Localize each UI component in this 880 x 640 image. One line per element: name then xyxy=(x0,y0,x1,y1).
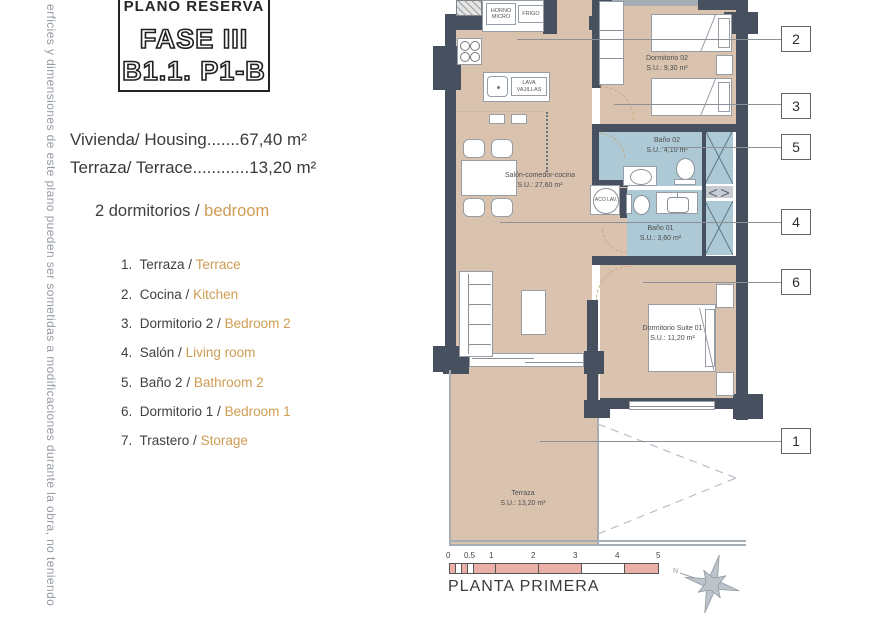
bedrooms-line: 2 dormitorios / bedroom xyxy=(95,202,269,221)
toilet-tank-icon xyxy=(674,179,696,185)
legend-en: Kitchen xyxy=(193,287,238,302)
wardrobe-suite xyxy=(716,284,734,308)
coffee-table xyxy=(521,290,546,335)
wardrobe-suite xyxy=(716,372,734,396)
legend-item-cocina: 2. Cocina / Kitchen xyxy=(121,287,238,302)
burner-icon xyxy=(470,41,480,51)
callout-number: 4 xyxy=(792,214,800,230)
kitchen-sink xyxy=(487,76,508,97)
scale-tick-0: 0 xyxy=(446,551,450,560)
legend-num: 4. xyxy=(121,345,132,360)
legend-item-dormitorio2: 3. Dormitorio 2 / Bedroom 2 xyxy=(121,316,291,331)
legend-es: Terraza / xyxy=(140,257,193,272)
callout-number: 6 xyxy=(792,274,800,290)
shaft-hatched xyxy=(456,0,482,16)
dining-chair xyxy=(463,139,485,158)
wall-segment xyxy=(592,132,599,182)
legend-item-dormitorio1: 6. Dormitorio 1 / Bedroom 1 xyxy=(121,404,291,419)
scale-tick-1: 1 xyxy=(489,551,493,560)
scale-tick-05: 0.5 xyxy=(464,551,475,560)
wall-pilaster xyxy=(733,394,763,419)
bed-single xyxy=(651,78,732,116)
legend-en: Terrace xyxy=(196,257,241,272)
sofa-cushion-line xyxy=(468,344,491,345)
scale-tick-4: 4 xyxy=(615,551,619,560)
wall-bedroom2-bath2 xyxy=(592,124,748,132)
wardrobe-bedroom2 xyxy=(599,1,624,85)
leader-line-kitchen xyxy=(517,39,781,40)
room-area: S.U.: 9,30 m² xyxy=(622,64,712,74)
terrace-area-line: Terraza/ Terrace............13,20 m² xyxy=(70,158,316,178)
legend-es: Cocina / xyxy=(140,287,190,302)
callout-3-bedroom2: 3 xyxy=(781,93,811,119)
wall-pilaster xyxy=(584,400,610,418)
scale-tick-3: 3 xyxy=(573,551,577,560)
legend-en: Living room xyxy=(186,345,256,360)
sink-drain-icon xyxy=(497,86,500,89)
window-top-bedroom2 xyxy=(612,0,698,6)
scale-segment xyxy=(474,564,496,573)
callout-4-living: 4 xyxy=(781,209,811,235)
room-label-suite: Dormitorio Suite 01 S.U.: 11,20 m² xyxy=(620,324,725,344)
dining-chair xyxy=(491,139,513,158)
legend-num: 3. xyxy=(121,316,132,331)
vanity-bath2 xyxy=(623,166,657,186)
room-label-living: Salón-comedor-cocina S.U.: 27,60 m² xyxy=(494,171,586,191)
floor-plan-sheet: erficies y dimensiones de este plano pue… xyxy=(0,0,880,640)
toilet-tank-icon xyxy=(626,194,632,214)
callout-number: 5 xyxy=(792,139,800,155)
washer-closet: ACO LAV. xyxy=(590,185,620,215)
kitchen-zone-line xyxy=(456,111,546,112)
legend-en: Bedroom 1 xyxy=(225,404,291,419)
bed-single xyxy=(651,14,732,52)
legend-item-salon: 4. Salón / Living room xyxy=(121,345,255,360)
room-name: Baño 01 xyxy=(618,224,703,234)
unit-label: B1.1. P1-B xyxy=(118,56,270,87)
wall-segment xyxy=(698,0,738,10)
legend-num: 5. xyxy=(121,375,132,390)
stove-hob xyxy=(457,38,482,65)
oven-microwave-unit: HORNO MICRO xyxy=(486,3,516,25)
wall-segment xyxy=(543,0,557,34)
closet-lower xyxy=(705,201,733,255)
leader-line-living xyxy=(500,222,781,223)
legend-es: Trastero / xyxy=(140,433,197,448)
room-area: S.U.: 3,60 m² xyxy=(618,234,703,244)
leader-line-terrace xyxy=(540,441,781,442)
callout-6-suite: 6 xyxy=(781,269,811,295)
legend-item-bano2: 5. Baño 2 / Bathroom 2 xyxy=(121,375,264,390)
fridge-unit: FRIGO xyxy=(518,5,544,23)
sofa-cushion-line xyxy=(468,304,491,305)
toilet-bath1 xyxy=(626,193,650,215)
toilet-bowl-icon xyxy=(633,195,650,215)
legend-num: 1. xyxy=(121,257,132,272)
room-area: S.U.: 13,20 m² xyxy=(483,499,563,509)
pillow xyxy=(718,82,730,112)
nightstand xyxy=(716,55,733,75)
dining-chair xyxy=(491,198,513,217)
sofa-back-line xyxy=(468,274,469,354)
scale-tick-2: 2 xyxy=(531,551,535,560)
legend-item-trastero: 7. Trastero / Storage xyxy=(121,433,248,448)
kitchen-zone-dotted-line xyxy=(546,112,548,172)
legend-es: Baño 2 / xyxy=(140,375,190,390)
scale-segment xyxy=(496,564,539,573)
dining-chair xyxy=(463,198,485,217)
stool xyxy=(511,114,527,124)
room-name: Baño 02 xyxy=(622,136,712,146)
parapet-left xyxy=(449,370,451,544)
scale-segment xyxy=(625,564,658,573)
plan-title: PLANTA PRIMERA xyxy=(448,578,600,596)
legend-en: Bathroom 2 xyxy=(194,375,264,390)
scale-segment xyxy=(582,564,625,573)
sliding-door-panel-line xyxy=(472,358,534,359)
leader-line-bedroom2 xyxy=(614,104,781,105)
callout-number: 1 xyxy=(792,433,800,449)
bedrooms-es: 2 dormitorios / xyxy=(95,202,200,220)
burner-icon xyxy=(460,52,470,62)
scale-bar xyxy=(449,563,659,574)
leader-line-bath2 xyxy=(662,147,781,148)
legend-num: 2. xyxy=(121,287,132,302)
wall-salon-terrace-right xyxy=(584,351,604,374)
burner-icon xyxy=(460,41,470,51)
stool xyxy=(489,114,505,124)
callout-1-terrace: 1 xyxy=(781,428,811,454)
sink-oval-icon xyxy=(630,169,652,185)
callout-5-bath2: 5 xyxy=(781,134,811,160)
room-area: S.U.: 11,20 m² xyxy=(620,334,725,344)
room-name: Dormitorio 02 xyxy=(622,54,712,64)
legend-es: Dormitorio 2 / xyxy=(140,316,221,331)
sofa-cushion-line xyxy=(468,324,491,325)
bedrooms-en: bedroom xyxy=(204,202,269,220)
toilet-bowl-icon xyxy=(676,158,695,180)
closet-x-icon xyxy=(705,201,733,255)
callout-number: 3 xyxy=(792,98,800,114)
toilet-bath2 xyxy=(674,158,696,186)
pillow xyxy=(718,18,730,48)
vertical-disclaimer-text: erficies y dimensiones de este plano pue… xyxy=(44,4,58,606)
wall-right-exterior xyxy=(736,0,748,420)
scale-segment xyxy=(539,564,582,573)
dishwasher-unit: LAVA VAJILLAS xyxy=(511,77,547,96)
parapet-bottom-line xyxy=(449,540,746,542)
compass-north-label: N xyxy=(673,568,678,575)
vanity-bath1 xyxy=(656,192,698,214)
wall-segment xyxy=(456,16,482,30)
washing-machine-icon: ACO LAV. xyxy=(593,188,619,214)
wall-bath1-bottom xyxy=(592,256,748,265)
room-name: Terraza xyxy=(483,489,563,499)
legend-num: 6. xyxy=(121,404,132,419)
housing-area-line: Vivienda/ Housing.......67,40 m² xyxy=(70,130,307,150)
room-area: S.U.: 27,60 m² xyxy=(494,181,586,191)
sofa xyxy=(459,271,493,357)
vent-icon xyxy=(705,187,733,199)
sliding-door-panel-line xyxy=(525,362,583,363)
legend-en: Storage xyxy=(201,433,248,448)
room-label-bedroom2: Dormitorio 02 S.U.: 9,30 m² xyxy=(622,54,712,74)
legend-num: 7. xyxy=(121,433,132,448)
room-label-terrace: Terraza S.U.: 13,20 m² xyxy=(483,489,563,509)
adjacent-terrace-dashed-outline xyxy=(598,420,740,538)
sink-square-icon xyxy=(667,197,689,213)
legend-item-terraza: 1. Terraza / Terrace xyxy=(121,257,241,272)
callout-2-kitchen: 2 xyxy=(781,26,811,52)
faucet-line xyxy=(677,193,678,198)
legend-es: Dormitorio 1 / xyxy=(140,404,221,419)
room-label-bath1: Baño 01 S.U.: 3,60 m² xyxy=(618,224,703,244)
window-suite xyxy=(629,401,715,410)
wardrobe-divider xyxy=(600,30,623,31)
legend-es: Salón / xyxy=(140,345,182,360)
vent-unit xyxy=(705,186,733,198)
room-name: Dormitorio Suite 01 xyxy=(620,324,725,334)
wardrobe-divider xyxy=(600,58,623,59)
scale-tick-5: 5 xyxy=(656,551,660,560)
callout-number: 2 xyxy=(792,31,800,47)
sheet-heading: PLANO RESERVA xyxy=(118,0,270,15)
window-glass-line xyxy=(630,406,714,407)
room-name: Salón-comedor-cocina xyxy=(494,171,586,181)
legend-en: Bedroom 2 xyxy=(225,316,291,331)
sofa-cushion-line xyxy=(468,284,491,285)
compass-rose-icon: N xyxy=(672,546,756,626)
floor-terrace xyxy=(449,368,599,544)
phase-label: FASE III xyxy=(118,24,270,55)
leader-line-suite xyxy=(643,282,781,283)
burner-icon xyxy=(470,52,480,62)
